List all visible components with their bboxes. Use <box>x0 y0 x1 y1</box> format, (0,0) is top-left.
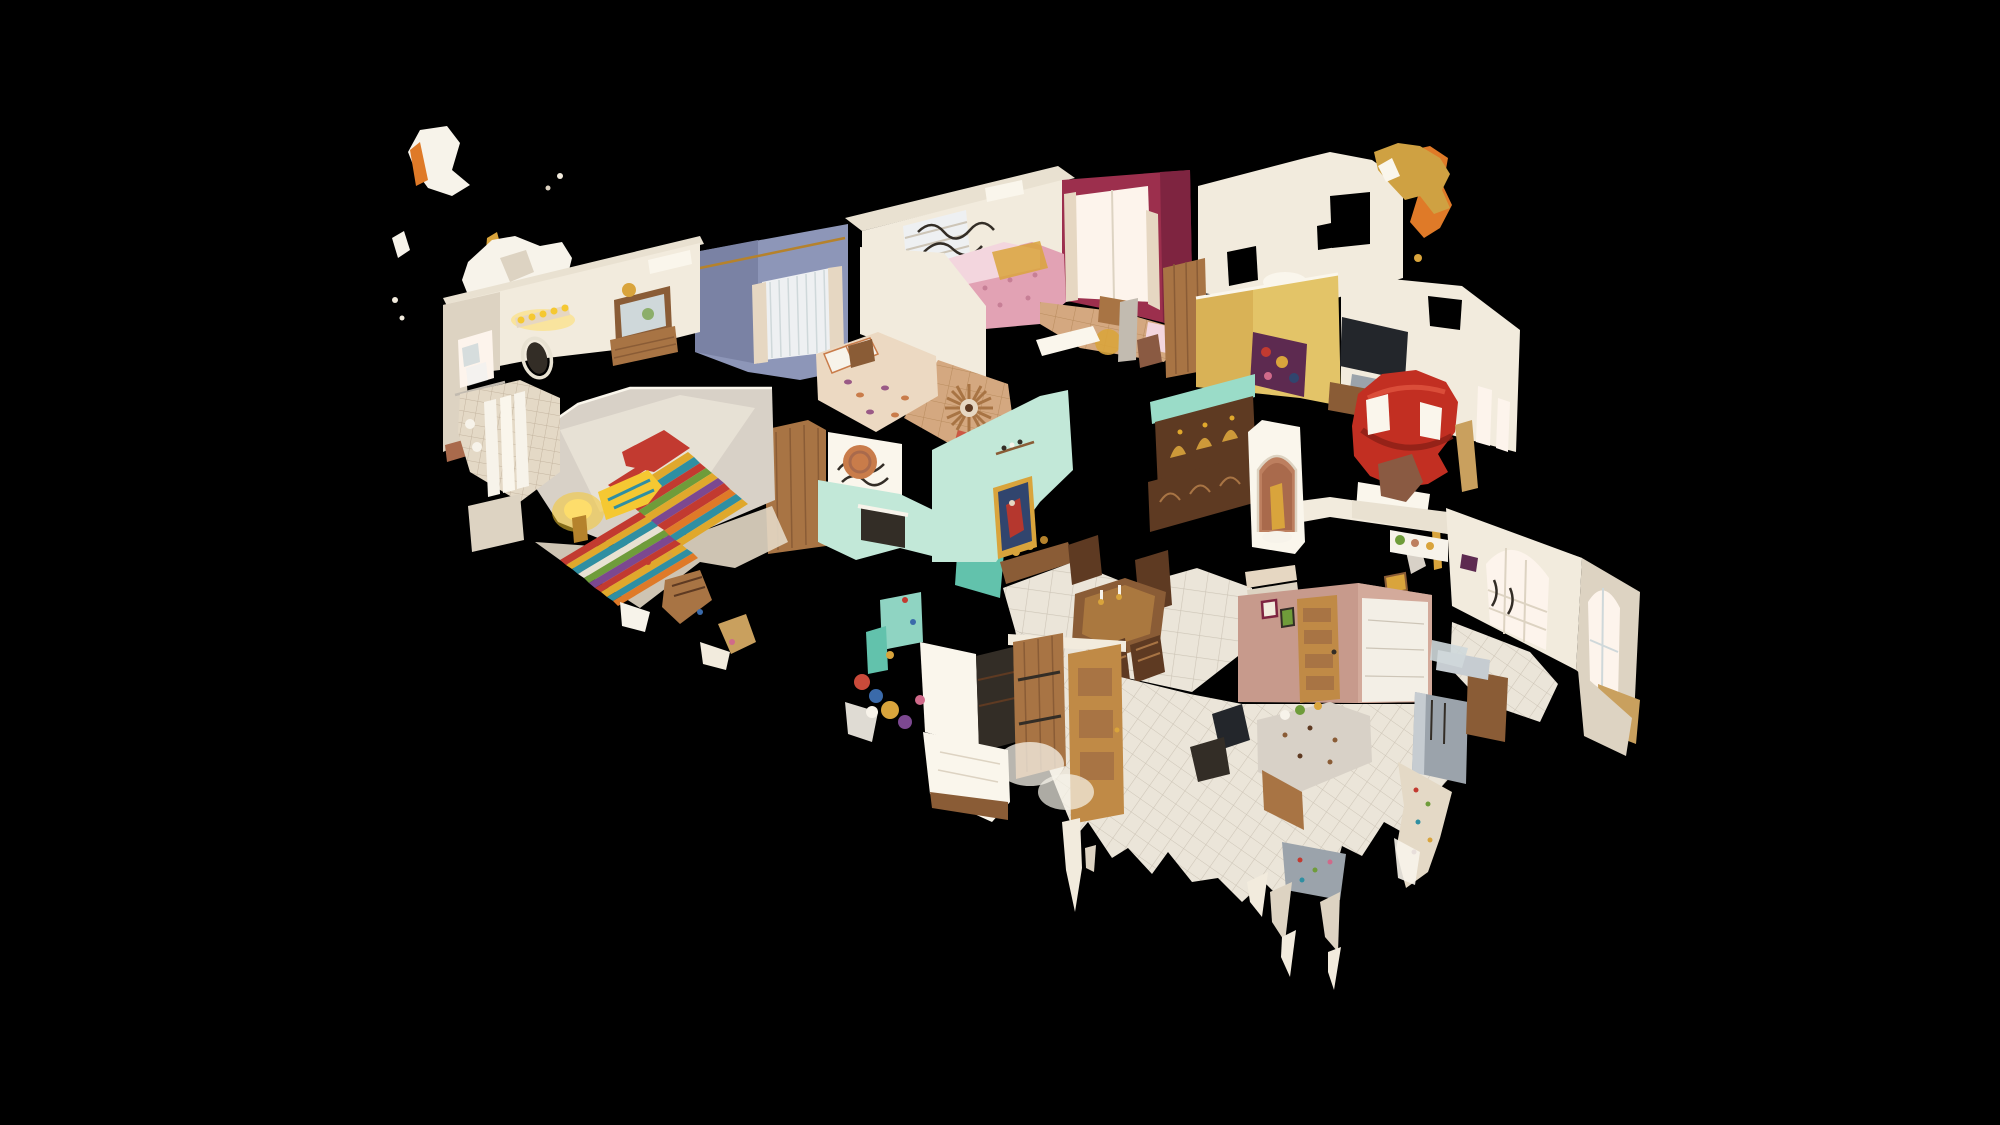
floral-dot <box>983 286 988 291</box>
santos-figure <box>1040 536 1048 544</box>
granite-speck <box>1298 754 1303 759</box>
point-cloud-stalactite <box>1328 947 1341 990</box>
dish-speck <box>1416 820 1421 825</box>
medallion-tapestry <box>843 445 877 479</box>
vanity-bulb <box>562 305 569 312</box>
bottle <box>1203 423 1208 428</box>
santos-figure <box>1026 542 1034 550</box>
teal-wall-fragment <box>866 626 888 674</box>
paisley-motif <box>901 396 909 401</box>
vanity-bulb <box>540 311 547 318</box>
paisley-motif <box>891 413 899 418</box>
gold-wall-clock <box>622 283 636 297</box>
island-bowl <box>1280 710 1290 720</box>
armchair <box>1137 334 1162 368</box>
dish-speck <box>1426 802 1431 807</box>
scan-noise-blob <box>869 689 883 703</box>
scan-dot <box>886 651 894 659</box>
wall-opening <box>1317 222 1337 250</box>
figurine <box>1010 443 1015 448</box>
paisley-motif <box>844 380 852 385</box>
gold-light-fixture <box>1095 329 1121 355</box>
granite-speck <box>1283 733 1288 738</box>
door-panel <box>1305 654 1333 668</box>
curtain <box>752 282 768 364</box>
kiva-arch-opening <box>1420 402 1442 440</box>
mirror-plant-reflection <box>642 308 654 320</box>
wall-opening <box>1428 296 1462 330</box>
door-panel <box>1306 676 1334 690</box>
floral-dot <box>1033 273 1038 278</box>
door-knob <box>1332 650 1337 655</box>
bottle <box>1178 430 1183 435</box>
scan-noise-blob <box>854 674 870 690</box>
gray-curtain <box>1118 298 1138 362</box>
slit-window <box>1496 398 1510 452</box>
curtain <box>1064 192 1078 302</box>
slit-window <box>1476 386 1492 446</box>
vanity-cabinet <box>468 494 524 552</box>
utility-room <box>845 592 1126 912</box>
scan-dot <box>910 619 916 625</box>
primary-bedroom-front <box>458 380 788 670</box>
gold-vessel <box>1426 542 1434 550</box>
dollhouse-model[interactable] <box>0 0 2000 1125</box>
dollhouse-3d-viewport[interactable] <box>0 0 2000 1125</box>
santos-figure <box>1012 548 1020 556</box>
scan-dot <box>697 609 703 615</box>
granite-speck <box>1333 738 1338 743</box>
granite-speck <box>1308 726 1313 731</box>
tapestry-motif <box>1276 356 1288 368</box>
door-panel <box>1303 608 1331 622</box>
door-panel <box>1080 752 1114 780</box>
door-panel <box>1078 668 1112 696</box>
scan-dot <box>1414 254 1422 262</box>
paisley-motif <box>856 393 864 398</box>
kiva-arch-opening <box>1366 394 1390 435</box>
tapestry-motif <box>1289 373 1299 383</box>
vanity-bulb <box>529 314 536 321</box>
bottle <box>1230 416 1235 421</box>
island-pot <box>1314 702 1322 710</box>
tapestry-motif <box>1261 347 1271 357</box>
mosaic-speck <box>1300 878 1305 883</box>
dish-speck <box>1414 788 1419 793</box>
scan-fragment <box>620 602 650 632</box>
picture-frame <box>1262 600 1277 618</box>
candlestick <box>1116 594 1122 600</box>
scan-noise-blob <box>915 695 925 705</box>
mosaic-speck <box>1298 858 1303 863</box>
mosaic-speck <box>1313 868 1318 873</box>
point-cloud-stalactite <box>1281 930 1296 977</box>
vanity-bulb <box>551 308 558 315</box>
scan-dot <box>546 186 551 191</box>
door-knob <box>1115 728 1120 733</box>
floral-dot <box>1008 278 1013 283</box>
scan-dot <box>645 559 651 565</box>
sunburst-core <box>965 404 973 412</box>
lace-fragment <box>1038 774 1094 810</box>
dish-speck <box>1428 838 1433 843</box>
candlestick <box>1098 599 1104 605</box>
point-cloud-stalactite <box>1270 882 1292 942</box>
scan-dot <box>400 316 405 321</box>
island-pot <box>1295 705 1305 715</box>
granite-speck <box>1328 760 1333 765</box>
figurine <box>1002 446 1007 451</box>
floral-dot <box>1026 296 1031 301</box>
point-cloud-stalactite <box>1320 892 1340 952</box>
scan-dot <box>729 639 735 645</box>
door-panel <box>1304 630 1332 644</box>
towel <box>472 442 482 452</box>
yellow-wall-light <box>1196 288 1253 392</box>
painting-halo <box>1009 500 1015 506</box>
vanity-bulb <box>518 317 525 324</box>
tapestry-motif <box>1264 372 1272 380</box>
figurine <box>1018 440 1023 445</box>
scan-fragment <box>700 642 730 670</box>
mosaic-speck <box>1328 860 1333 865</box>
door-panel <box>1079 710 1113 738</box>
scan-noise-blob <box>881 701 899 719</box>
paisley-motif <box>866 410 874 415</box>
curtain <box>828 266 844 352</box>
lit-wall <box>920 642 979 747</box>
potted-plant <box>1395 535 1405 545</box>
floral-dot <box>998 303 1003 308</box>
scan-dot <box>667 552 673 558</box>
wood-cabinets <box>1466 670 1508 742</box>
scan-noise-blob <box>898 715 912 729</box>
scan-fragment <box>392 231 410 258</box>
paisley-motif <box>881 386 889 391</box>
scan-dot <box>557 173 563 179</box>
niche-shelf-bowl <box>1262 531 1292 543</box>
towel <box>465 419 475 429</box>
clay-pot <box>1411 539 1419 547</box>
curtain <box>1146 210 1160 310</box>
scan-dot <box>392 297 398 303</box>
point-cloud-stalactite <box>1062 818 1082 912</box>
lamp-table <box>572 515 588 543</box>
scan-dot <box>902 597 908 603</box>
wall-opening <box>1227 246 1258 286</box>
scan-fragment <box>718 614 756 654</box>
point-cloud-stalactite <box>1085 845 1096 872</box>
picture-frame <box>1281 608 1294 627</box>
